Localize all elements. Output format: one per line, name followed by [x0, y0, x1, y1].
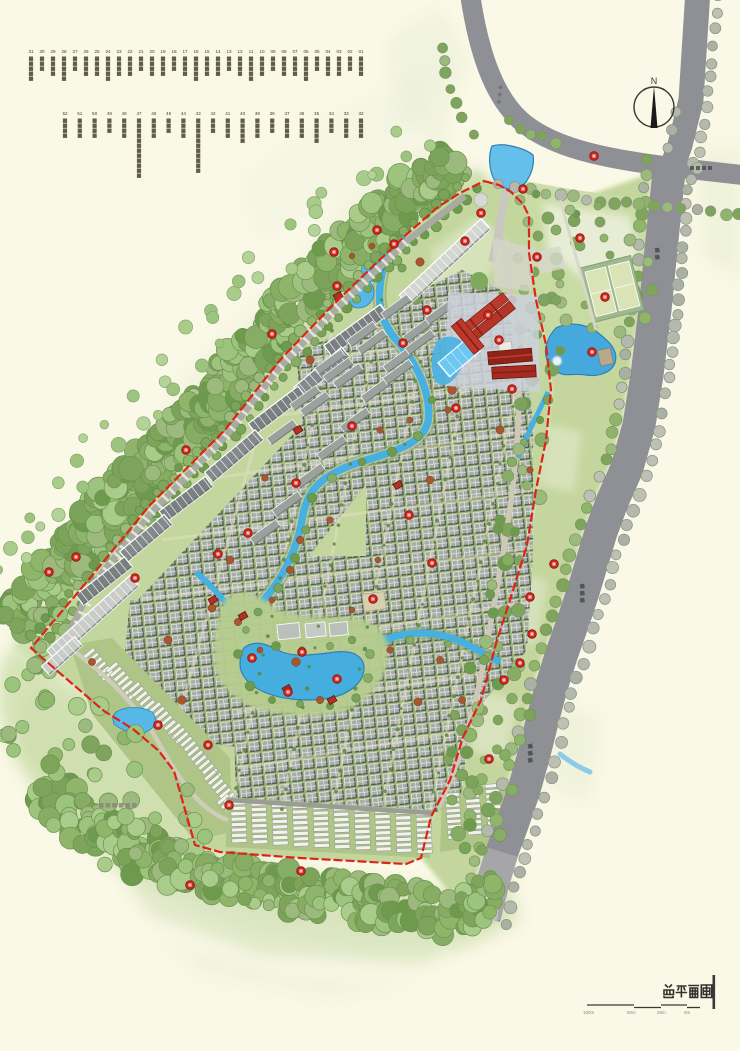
svg-text:12: 12: [237, 49, 243, 54]
svg-text:02: 02: [347, 49, 353, 54]
svg-text:28: 28: [61, 49, 67, 54]
svg-text:03: 03: [336, 49, 342, 54]
svg-text:47: 47: [136, 111, 142, 116]
svg-text:46: 46: [151, 111, 157, 116]
svg-text:08: 08: [281, 49, 287, 54]
svg-text:13: 13: [226, 49, 232, 54]
svg-text:50m: 50m: [627, 1010, 636, 1015]
svg-text:44: 44: [181, 111, 187, 116]
svg-text:24: 24: [105, 49, 111, 54]
svg-text:25m: 25m: [657, 1010, 666, 1015]
svg-text:41: 41: [225, 111, 231, 116]
svg-text:22: 22: [127, 49, 133, 54]
svg-text:15: 15: [204, 49, 210, 54]
svg-text:26: 26: [83, 49, 89, 54]
svg-text:0m: 0m: [684, 1010, 691, 1015]
svg-text:38: 38: [270, 111, 276, 116]
svg-text:21: 21: [138, 49, 144, 54]
svg-text:16: 16: [193, 49, 199, 54]
svg-text:29: 29: [50, 49, 56, 54]
svg-text:23: 23: [116, 49, 122, 54]
svg-text:50: 50: [92, 111, 98, 116]
svg-text:33: 33: [344, 111, 350, 116]
svg-text:34: 34: [329, 111, 335, 116]
svg-text:36: 36: [299, 111, 305, 116]
svg-text:11: 11: [249, 49, 254, 54]
svg-text:25: 25: [94, 49, 100, 54]
svg-text:32: 32: [358, 111, 364, 116]
svg-text:42: 42: [210, 111, 216, 116]
svg-text:07: 07: [292, 49, 298, 54]
svg-text:37: 37: [284, 111, 290, 116]
svg-text:40: 40: [240, 111, 246, 116]
svg-text:30: 30: [39, 49, 45, 54]
svg-text:20: 20: [149, 49, 155, 54]
svg-text:49: 49: [107, 111, 113, 116]
svg-text:17: 17: [182, 49, 188, 54]
svg-text:48: 48: [122, 111, 128, 116]
svg-text:06: 06: [303, 49, 309, 54]
svg-text:52: 52: [62, 111, 68, 116]
svg-text:35: 35: [314, 111, 320, 116]
svg-text:51: 51: [77, 111, 83, 116]
svg-text:09: 09: [270, 49, 276, 54]
svg-text:31: 31: [28, 49, 34, 54]
svg-text:27: 27: [72, 49, 78, 54]
svg-text:N: N: [651, 76, 658, 86]
svg-text:39: 39: [255, 111, 261, 116]
svg-text:04: 04: [325, 49, 331, 54]
svg-text:01: 01: [358, 49, 364, 54]
svg-text:45: 45: [166, 111, 172, 116]
svg-text:43: 43: [196, 111, 202, 116]
svg-text:100m: 100m: [583, 1010, 595, 1015]
svg-text:05: 05: [314, 49, 320, 54]
svg-text:18: 18: [171, 49, 177, 54]
svg-text:19: 19: [160, 49, 166, 54]
svg-text:14: 14: [215, 49, 221, 54]
svg-text:10: 10: [259, 49, 265, 54]
